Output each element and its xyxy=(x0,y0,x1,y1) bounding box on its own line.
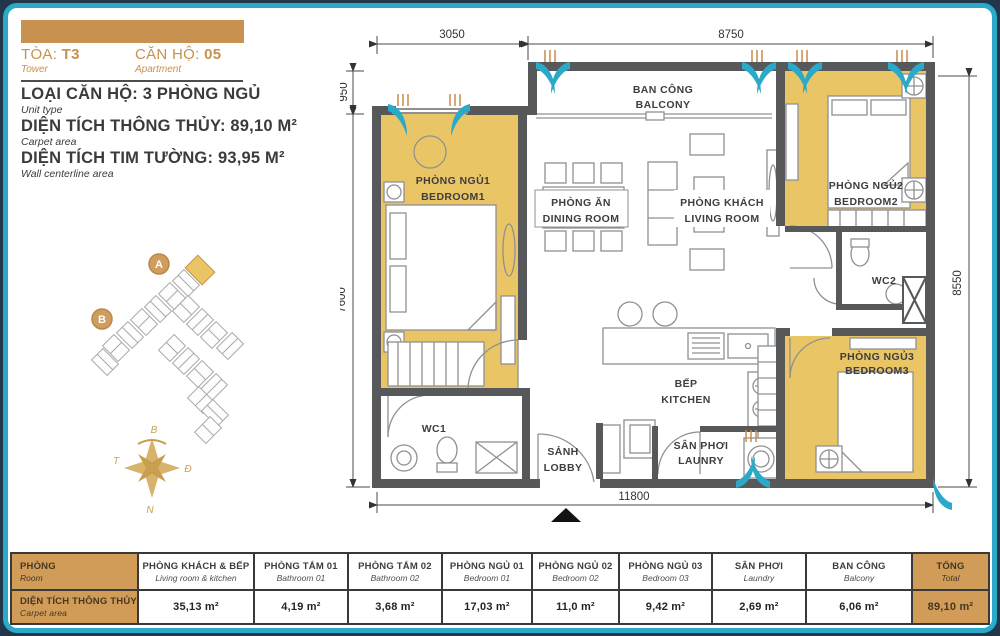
table-col-laundry: SÂN PHƠILaundry 2,69 m² xyxy=(713,554,807,623)
dim-right: 8550 xyxy=(952,270,964,296)
col-value: 4,19 m² xyxy=(255,591,347,623)
apartment-label: CĂN HỘ: xyxy=(135,46,200,63)
col-vi: PHÒNG NGỦ 03 xyxy=(628,561,702,572)
col-en: Bathroom 01 xyxy=(277,573,326,583)
table-col-bedroom2: PHÒNG NGỦ 02Bedroom 02 11,0 m² xyxy=(533,554,620,623)
room-header-en: Room xyxy=(20,573,43,583)
tower-value: T3 xyxy=(62,46,80,63)
row-label-cell: DIỆN TÍCH THÔNG THỦY Carpet area xyxy=(12,591,137,623)
bedroom3-label-en: BEDROOM3 xyxy=(845,365,909,377)
col-en: Bedroom 03 xyxy=(642,573,688,583)
total-value: 89,10 m² xyxy=(913,591,988,623)
living-label-en: LIVING ROOM xyxy=(685,213,760,225)
floor-plan: PHÒNG NGỦ1 BEDROOM1 PHÒNG ĂN DINING ROOM… xyxy=(340,8,1000,548)
kitchen-label-vi: BẾP xyxy=(675,377,698,390)
table-row-header-column: PHÒNG Room DIỆN TÍCH THÔNG THỦY Carpet a… xyxy=(12,554,139,623)
shaft xyxy=(903,277,926,323)
bedroom1-label-en: BEDROOM1 xyxy=(421,191,485,203)
area-table: PHÒNG Room DIỆN TÍCH THÔNG THỦY Carpet a… xyxy=(10,552,990,625)
entrance-arrow-icon xyxy=(551,508,581,522)
row-label-vi: DIỆN TÍCH THÔNG THỦY xyxy=(20,596,137,607)
svg-text:T: T xyxy=(113,456,120,467)
wall-area-line: DIỆN TÍCH TIM TƯỜNG: 93,95 M² xyxy=(21,149,285,168)
tower-label: TÒA: xyxy=(21,46,57,63)
tower-key-plan xyxy=(92,255,244,443)
apartment-value: 05 xyxy=(204,46,221,63)
col-value: 3,68 m² xyxy=(349,591,441,623)
svg-text:A: A xyxy=(155,259,163,271)
wc1-label: WC1 xyxy=(422,423,447,435)
marker-a: A xyxy=(149,254,169,274)
col-value: 6,06 m² xyxy=(807,591,911,623)
living-label-vi: PHÒNG KHÁCH xyxy=(680,196,764,209)
header-divider xyxy=(21,80,243,82)
unit-type-line: LOẠI CĂN HỘ: 3 PHÒNG NGỦ xyxy=(21,85,260,104)
svg-text:N: N xyxy=(146,505,154,516)
dim-top-left: 3050 xyxy=(439,29,465,41)
col-vi: SÂN PHƠI xyxy=(735,561,783,572)
laundry-label-vi: SÂN PHƠI xyxy=(674,439,729,452)
key-plan-and-compass: A B B Đ N T xyxy=(80,240,310,530)
room-header-vi: PHÒNG xyxy=(20,561,56,572)
table-col-bathroom2: PHÒNG TẮM 02Bathroom 02 3,68 m² xyxy=(349,554,443,623)
marker-b: B xyxy=(92,309,112,329)
col-value: 35,13 m² xyxy=(139,591,253,623)
lobby-label-en: LOBBY xyxy=(544,462,583,474)
col-en: Laundry xyxy=(744,573,775,583)
total-vi: TỔNG xyxy=(936,561,964,572)
dim-left-lower: 7600 xyxy=(340,287,348,313)
bedroom2-label-en: BEDROOM2 xyxy=(834,196,898,208)
title-orange-bar xyxy=(21,20,244,43)
col-vi: PHÒNG NGỦ 01 xyxy=(450,561,524,572)
wc2-label: WC2 xyxy=(872,275,897,287)
laundry-label-en: LAUNRY xyxy=(678,455,724,467)
table-col-bedroom3: PHÒNG NGỦ 03Bedroom 03 9,42 m² xyxy=(620,554,713,623)
kitchen-label-en: KITCHEN xyxy=(661,394,710,406)
dim-top-right: 8750 xyxy=(718,29,744,41)
carpet-area-sublabel: Carpet area xyxy=(21,136,76,148)
table-col-total: TỔNGTotal 89,10 m² xyxy=(913,554,988,623)
unit-type-sublabel: Unit type xyxy=(21,104,62,116)
apartment-sublabel: Apartment xyxy=(135,64,181,75)
col-vi: BAN CÔNG xyxy=(832,561,885,572)
bedroom2-label-vi: PHÒNG NGỦ2 xyxy=(829,179,904,192)
dim-left-upper: 950 xyxy=(340,82,350,101)
bedroom1-label-vi: PHÒNG NGỦ1 xyxy=(416,174,491,187)
col-vi: PHÒNG KHÁCH & BẾP xyxy=(143,561,250,572)
col-en: Bathroom 02 xyxy=(371,573,420,583)
tower-sublabel: Tower xyxy=(21,64,48,75)
dining-label-en: DINING ROOM xyxy=(543,213,620,225)
col-en: Bedroom 01 xyxy=(464,573,510,583)
col-value: 2,69 m² xyxy=(713,591,805,623)
svg-text:Đ: Đ xyxy=(184,464,191,475)
dining-label-vi: PHÒNG ĂN xyxy=(551,196,611,209)
compass-rose-icon: B Đ N T xyxy=(113,425,192,516)
col-en: Balcony xyxy=(844,573,874,583)
lobby-label-vi: SẢNH xyxy=(547,445,578,458)
carpet-area-line: DIỆN TÍCH THÔNG THỦY: 89,10 M² xyxy=(21,117,297,136)
col-en: Bedroom 02 xyxy=(552,573,598,583)
col-vi: PHÒNG NGỦ 02 xyxy=(538,561,612,572)
balcony-label-en: BALCONY xyxy=(636,99,691,111)
table-col-bathroom1: PHÒNG TẮM 01Bathroom 01 4,19 m² xyxy=(255,554,349,623)
table-col-bedroom1: PHÒNG NGỦ 01Bedroom 01 17,03 m² xyxy=(443,554,533,623)
bedroom3-label-vi: PHÒNG NGỦ3 xyxy=(840,350,915,363)
col-value: 11,0 m² xyxy=(533,591,618,623)
apartment-line: CĂN HỘ: 05 xyxy=(135,46,221,63)
col-vi: PHÒNG TẮM 01 xyxy=(264,561,338,572)
row-label-en: Carpet area xyxy=(20,608,67,618)
svg-text:B: B xyxy=(98,314,106,326)
col-value: 9,42 m² xyxy=(620,591,711,623)
svg-text:B: B xyxy=(151,425,158,436)
total-en: Total xyxy=(941,573,959,583)
dim-bottom: 11800 xyxy=(618,491,649,503)
balcony-label-vi: BAN CÔNG xyxy=(633,83,693,96)
room-header-cell: PHÒNG Room xyxy=(12,554,137,591)
table-col-living-kitchen: PHÒNG KHÁCH & BẾPLiving room & kitchen 3… xyxy=(139,554,255,623)
col-en: Living room & kitchen xyxy=(155,573,236,583)
col-value: 17,03 m² xyxy=(443,591,531,623)
col-vi: PHÒNG TẮM 02 xyxy=(358,561,432,572)
wall-area-sublabel: Wall centerline area xyxy=(21,168,114,180)
tower-line: TÒA: T3 xyxy=(21,46,80,63)
table-col-balcony: BAN CÔNGBalcony 6,06 m² xyxy=(807,554,913,623)
